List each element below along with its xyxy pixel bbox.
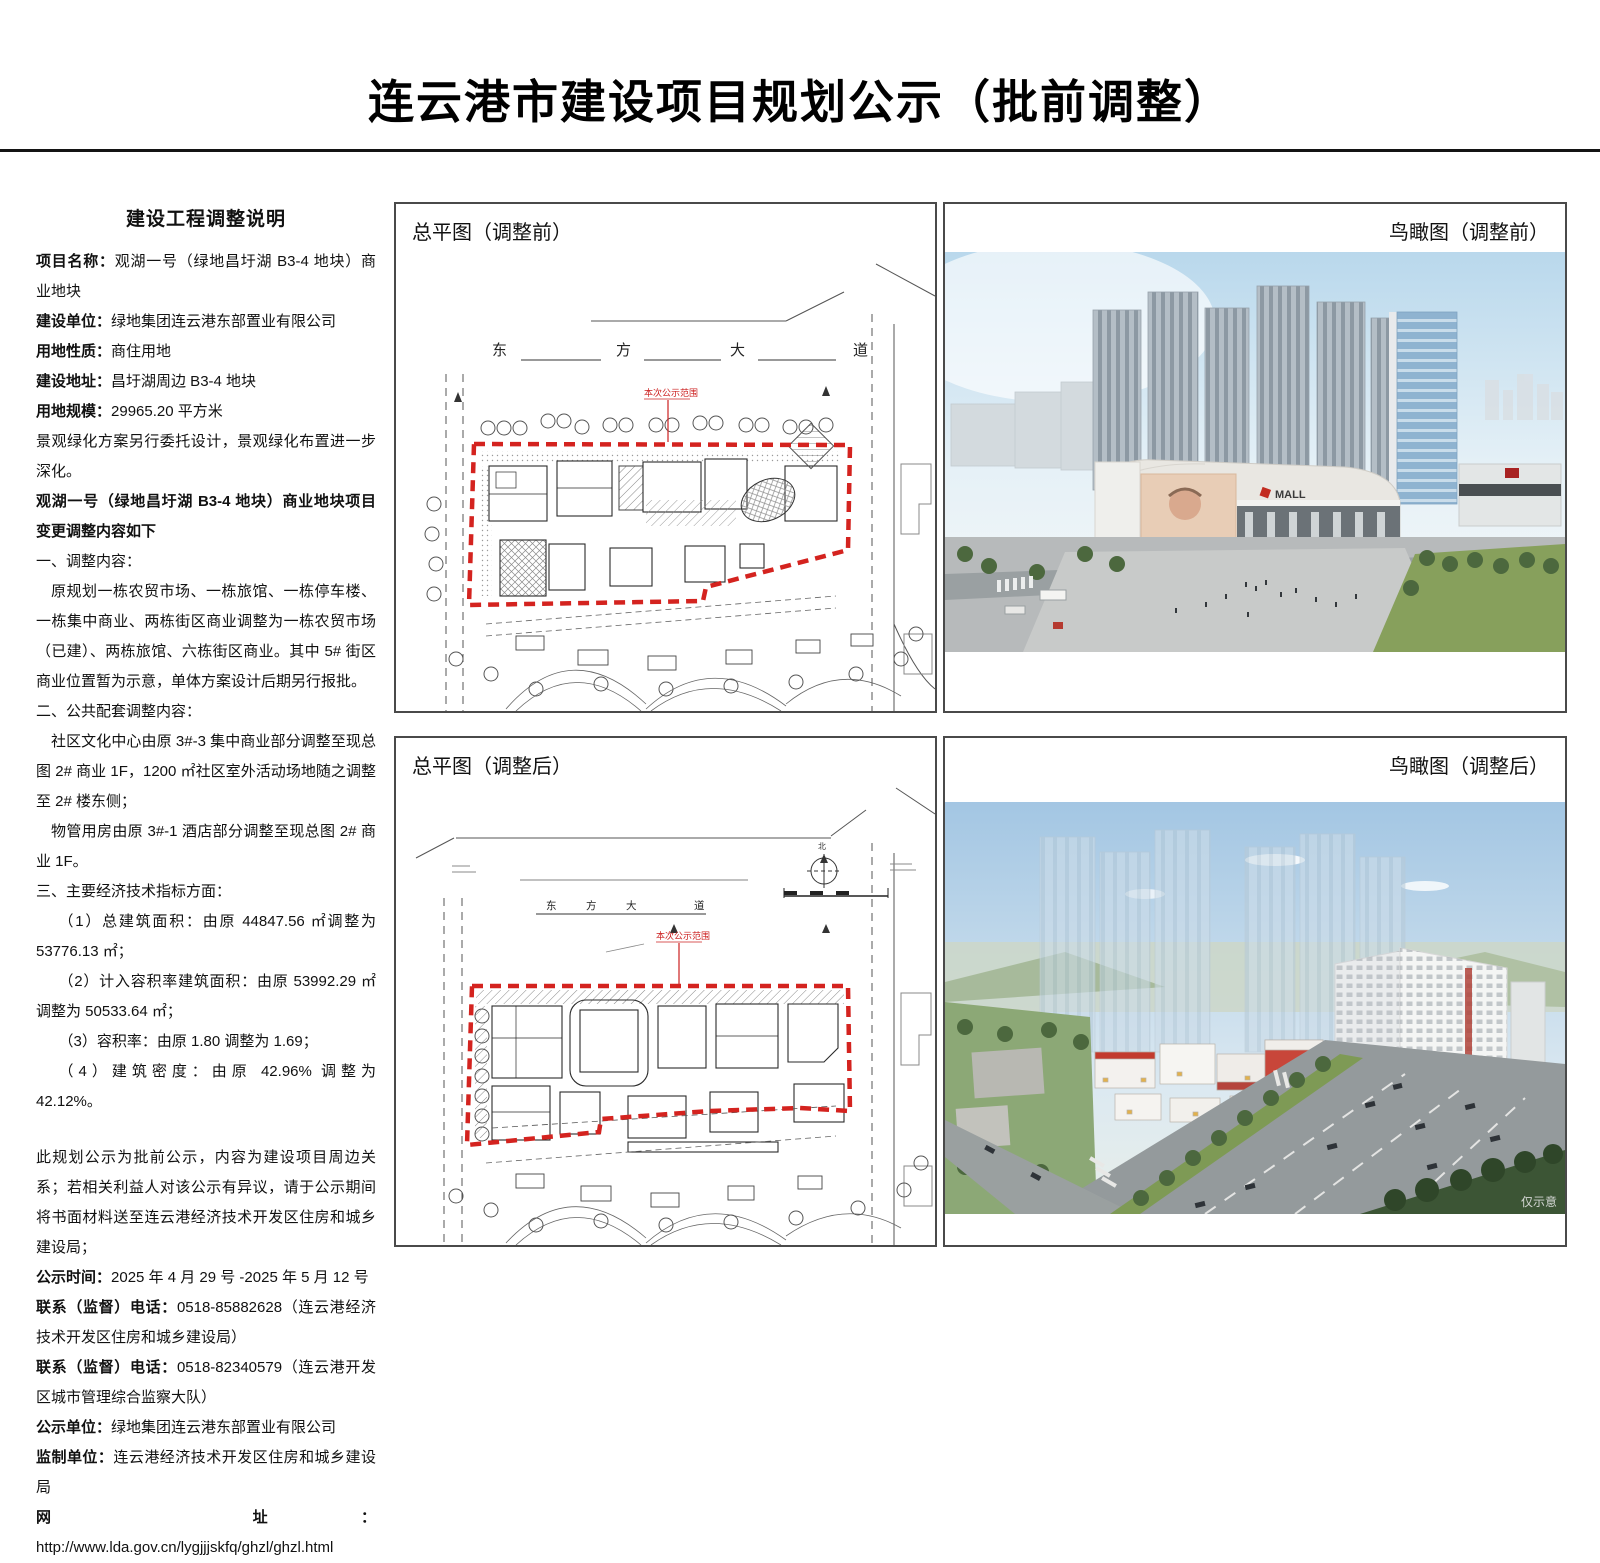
objection-notice: 此规划公示为批前公示，内容为建设项目周边关系；若相关利益人对该公示有异议，请于公… bbox=[36, 1143, 376, 1263]
buildings-after bbox=[492, 1000, 844, 1152]
site-plan-before-drawing: 东 方 大 道 本次公示范围 bbox=[396, 204, 935, 711]
svg-text:道: 道 bbox=[694, 899, 705, 912]
svg-text:东: 东 bbox=[546, 899, 557, 912]
svg-text:方: 方 bbox=[616, 342, 631, 359]
buildings-before bbox=[489, 459, 837, 596]
section2-paragraph-2: 物管用房由原 3#-1 酒店部分调整至现总图 2# 商业 1F。 bbox=[36, 817, 376, 877]
scope-annotation: 本次公示范围 bbox=[644, 387, 698, 442]
aerial-before-panel: 鸟瞰图（调整前） bbox=[943, 202, 1567, 713]
title-divider bbox=[0, 149, 1600, 152]
page-title: 连云港市建设项目规划公示（批前调整） bbox=[0, 66, 1600, 132]
svg-text:方: 方 bbox=[586, 899, 597, 912]
north-label: 北 bbox=[818, 842, 826, 851]
scope-annotation: 本次公示范围 bbox=[656, 930, 710, 984]
field-phone-2: 联系（监督）电话：0518-82340579（连云港开发区城市管理综合监察大队） bbox=[36, 1353, 376, 1413]
field-land-area: 用地规模：29965.20 平方米 bbox=[36, 397, 376, 427]
description-heading: 建设工程调整说明 bbox=[36, 204, 376, 231]
svg-text:东: 东 bbox=[492, 342, 507, 359]
watermark-text: 仅示意 bbox=[1521, 1194, 1557, 1209]
indicator-density: （4）建筑密度：由原 42.96% 调整为 42.12%。 bbox=[36, 1057, 376, 1117]
residential-context bbox=[486, 596, 901, 711]
section3-heading: 三、主要经济技术指标方面： bbox=[36, 877, 376, 907]
aerial-before-rendering: MALL bbox=[945, 252, 1565, 652]
landscape-note: 景观绿化方案另行委托设计，景观绿化布置进一步深化。 bbox=[36, 427, 376, 487]
site-plan-before-label: 总平图（调整前） bbox=[412, 216, 572, 245]
flow-arrow-icon bbox=[454, 386, 830, 402]
svg-text:大: 大 bbox=[730, 342, 745, 359]
site-plan-after-drawing: 北 东 方 大 道 本次公示范围 bbox=[396, 738, 935, 1245]
svg-text:本次公示范围: 本次公示范围 bbox=[656, 930, 710, 941]
adjustment-description: 建设工程调整说明 项目名称：观湖一号（绿地昌圩湖 B3-4 地块）商业地块 建设… bbox=[36, 204, 376, 1563]
road-name-dongfang-avenue: 东 方 大 道 bbox=[492, 342, 868, 360]
section2-paragraph-1: 社区文化中心由原 3#-3 集中商业部分调整至现总图 2# 商业 1F，1200… bbox=[36, 727, 376, 817]
site-plan-after-label: 总平图（调整后） bbox=[412, 750, 572, 779]
section2-heading: 二、公共配套调整内容： bbox=[36, 697, 376, 727]
field-website: 网 址：http://www.lda.gov.cn/lygjjjskfq/ghz… bbox=[36, 1503, 376, 1563]
field-phone-1: 联系（监督）电话：0518-85882628（连云港经济技术开发区住房和城乡建设… bbox=[36, 1293, 376, 1353]
field-publicity-period: 公示时间：2025 年 4 月 29 号 -2025 年 5 月 12 号 bbox=[36, 1263, 376, 1293]
mall-sign-text: MALL bbox=[1275, 489, 1306, 501]
indicator-total-area: （1）总建筑面积：由原 44847.56 ㎡调整为 53776.13 ㎡； bbox=[36, 907, 376, 967]
indicator-far-area: （2）计入容积率建筑面积：由原 53992.29 ㎡调整为 50533.64 ㎡… bbox=[36, 967, 376, 1027]
svg-text:大: 大 bbox=[626, 899, 637, 912]
field-developer: 建设单位：绿地集团连云港东部置业有限公司 bbox=[36, 307, 376, 337]
office-tower bbox=[1389, 312, 1457, 504]
aerial-after-rendering: 仅示意 bbox=[945, 802, 1565, 1214]
field-project-name: 项目名称：观湖一号（绿地昌圩湖 B3-4 地块）商业地块 bbox=[36, 247, 376, 307]
field-land-use: 用地性质：商住用地 bbox=[36, 337, 376, 367]
north-arrow-icon bbox=[807, 854, 841, 888]
field-publicity-unit: 公示单位：绿地集团连云港东部置业有限公司 bbox=[36, 1413, 376, 1443]
change-title: 观湖一号（绿地昌圩湖 B3-4 地块）商业地块项目变更调整内容如下 bbox=[36, 487, 376, 547]
road-name-dongfang-avenue: 东 方 大 道 bbox=[536, 899, 706, 914]
section1-paragraph: 原规划一栋农贸市场、一栋旅馆、一栋停车楼、一栋集中商业、两栋街区商业调整为一栋农… bbox=[36, 577, 376, 697]
site-plan-before-panel: 总平图（调整前） 东 方 大 道 bbox=[394, 202, 937, 713]
field-address: 建设地址：昌圩湖周边 B3-4 地块 bbox=[36, 367, 376, 397]
aerial-before-label: 鸟瞰图（调整前） bbox=[1389, 216, 1549, 245]
field-supervising-unit: 监制单位：连云港经济技术开发区住房和城乡建设局 bbox=[36, 1443, 376, 1503]
aerial-after-label: 鸟瞰图（调整后） bbox=[1389, 750, 1549, 779]
svg-text:本次公示范围: 本次公示范围 bbox=[644, 387, 698, 398]
site-plan-after-panel: 总平图（调整后） 北 东 方 大 道 bbox=[394, 736, 937, 1247]
aerial-after-panel: 鸟瞰图（调整后） bbox=[943, 736, 1567, 1247]
section1-heading: 一、调整内容： bbox=[36, 547, 376, 577]
indicator-far: （3）容积率：由原 1.80 调整为 1.69； bbox=[36, 1027, 376, 1057]
svg-text:道: 道 bbox=[853, 342, 868, 359]
